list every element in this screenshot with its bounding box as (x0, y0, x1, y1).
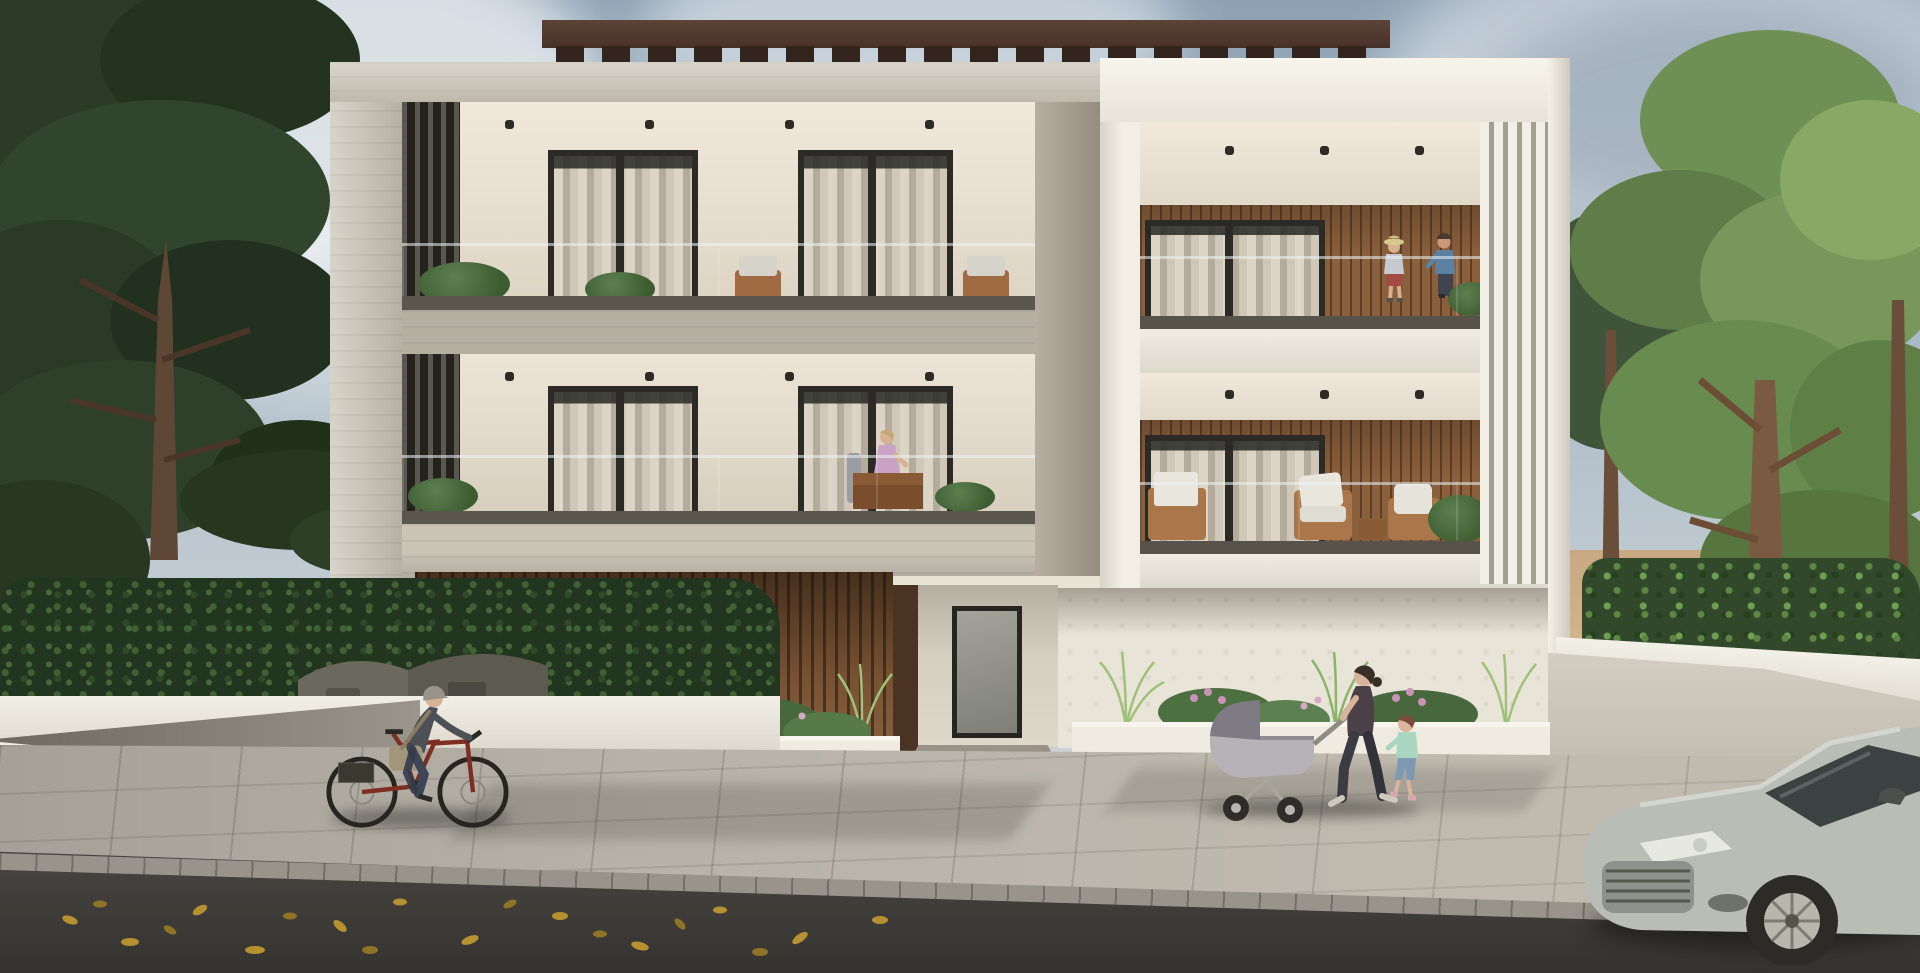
glass-balustrade (1140, 256, 1480, 323)
frame-top-band (330, 62, 1100, 102)
right-upper-ceiling (1140, 122, 1480, 208)
mother-with-stroller (1192, 640, 1422, 830)
glass-balustrade (402, 455, 1035, 518)
ceiling-spotlight (505, 372, 514, 381)
ceiling-spotlight (785, 120, 794, 129)
ceiling-spotlight (1415, 146, 1424, 155)
roof-pergola-beam (542, 20, 1390, 48)
planter-shadow (450, 784, 1049, 840)
balcony-rail-cap (402, 511, 1100, 524)
grille (1602, 861, 1694, 913)
right-lower-ceiling (1140, 373, 1480, 423)
flat-cap (423, 686, 448, 701)
mother-figure (1331, 665, 1395, 804)
frame-left-pillar (330, 62, 402, 592)
balcony-rail-cap (402, 296, 1100, 310)
glass-balustrade (1140, 482, 1480, 549)
walking-child (1388, 715, 1418, 798)
ceiling-spotlight (785, 372, 794, 381)
ceiling-spotlight (1415, 390, 1424, 399)
ceiling-spotlight (645, 120, 654, 129)
entrance-door (952, 606, 1022, 738)
white-louver-fins (1480, 122, 1548, 584)
ceiling-spotlight (1225, 390, 1234, 399)
ceiling-spotlight (505, 120, 514, 129)
fallen-leaves (40, 880, 940, 970)
fog-light (1708, 894, 1748, 912)
ceiling-spotlight (1320, 390, 1329, 399)
architectural-render: TOPCY 32 (0, 0, 1920, 973)
ceiling-spotlight (925, 120, 934, 129)
parked-car (1580, 695, 1920, 965)
right-block-top-band (1100, 58, 1568, 122)
ceiling-spotlight (1225, 146, 1234, 155)
ceiling-spotlight (645, 372, 654, 381)
frame-right-face (1035, 102, 1100, 592)
right-corner-column (1548, 58, 1570, 658)
cyclist (325, 648, 510, 833)
right-block-left-pillar (1100, 58, 1140, 606)
stroller-hood (1210, 700, 1260, 740)
ceiling-spotlight (1320, 146, 1329, 155)
ceiling-spotlight (925, 372, 934, 381)
bike-basket (339, 763, 374, 782)
floor-slab-fascia (402, 310, 1100, 354)
